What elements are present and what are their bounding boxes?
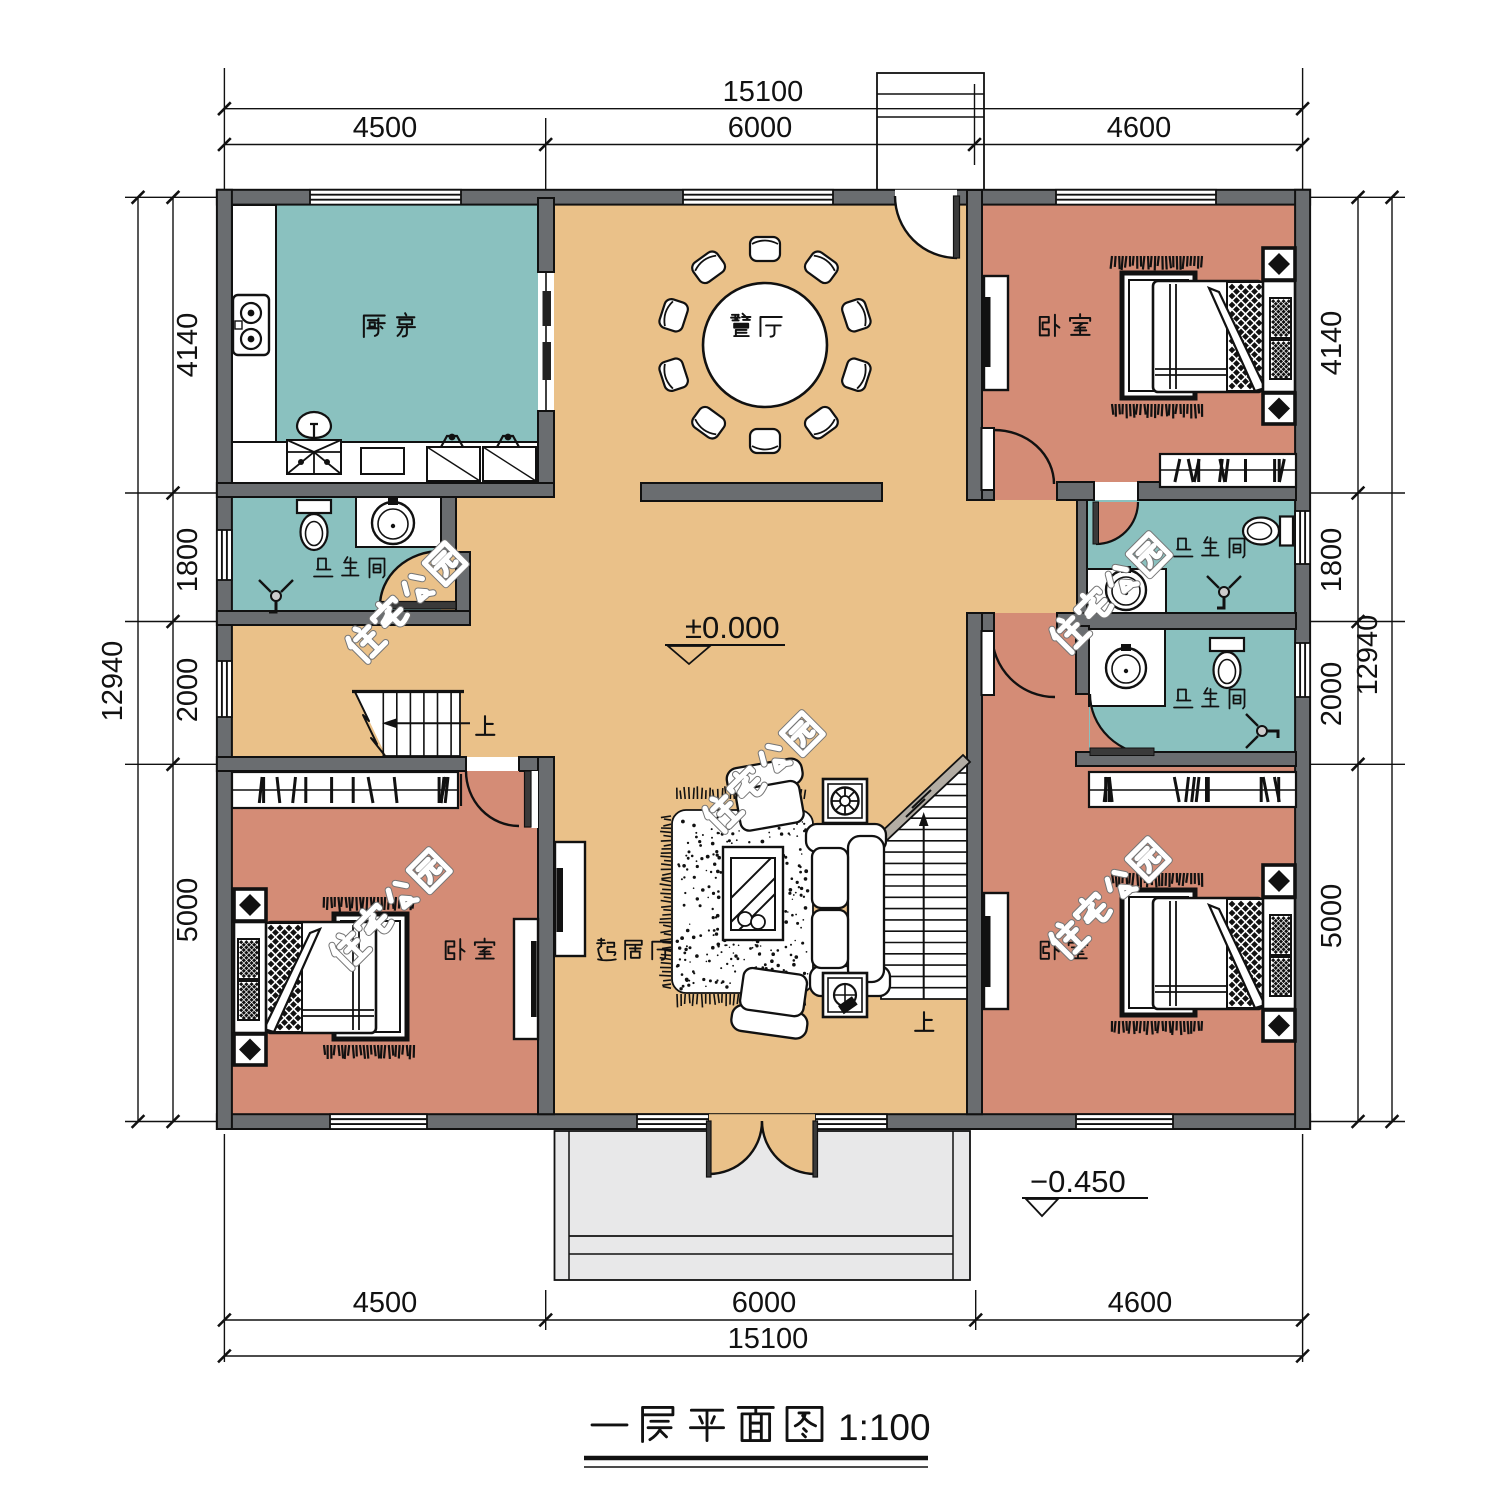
svg-text:4600: 4600 [1107, 112, 1172, 144]
svg-text:5000: 5000 [1316, 884, 1348, 949]
svg-text:−0.450: −0.450 [1030, 1164, 1126, 1199]
svg-text:1800: 1800 [1316, 528, 1348, 593]
svg-text:1800: 1800 [172, 528, 204, 593]
svg-text:15100: 15100 [728, 1323, 809, 1355]
svg-text:5000: 5000 [172, 878, 204, 943]
svg-text:12940: 12940 [97, 641, 129, 722]
svg-text:±0.000: ±0.000 [685, 610, 780, 645]
svg-text:15100: 15100 [723, 76, 804, 108]
svg-text:12940: 12940 [1352, 615, 1384, 696]
svg-text:4500: 4500 [353, 1287, 418, 1319]
svg-text:4600: 4600 [1108, 1287, 1173, 1319]
svg-text:2000: 2000 [172, 658, 204, 723]
svg-text:4140: 4140 [1316, 311, 1348, 376]
svg-text:4500: 4500 [353, 112, 418, 144]
svg-text:6000: 6000 [728, 112, 793, 144]
svg-text:6000: 6000 [732, 1287, 797, 1319]
svg-text:2000: 2000 [1316, 662, 1348, 727]
svg-text:4140: 4140 [172, 313, 204, 378]
svg-text:1:100: 1:100 [838, 1407, 931, 1448]
